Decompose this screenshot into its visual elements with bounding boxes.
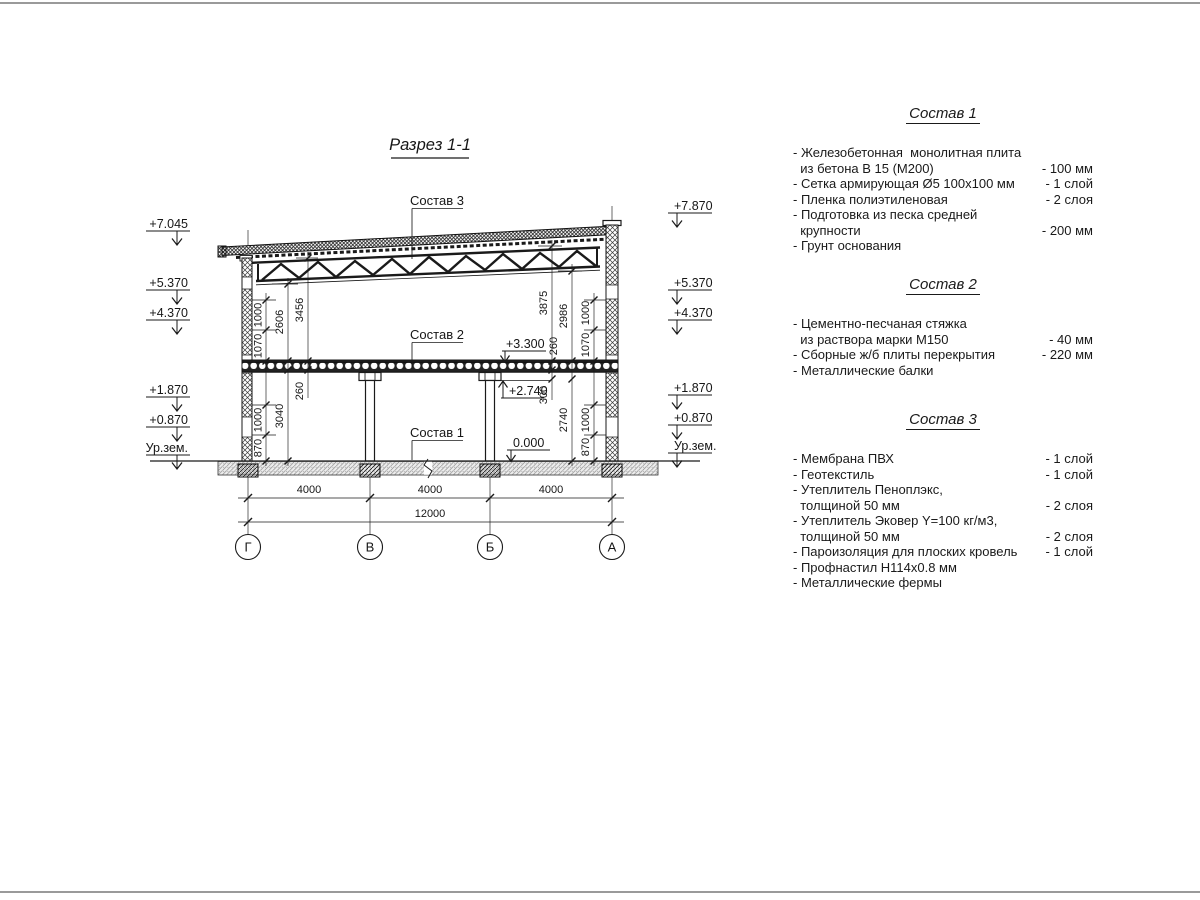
svg-text:Состав 3: Состав 3: [410, 193, 464, 208]
span-dim: 4000: [297, 484, 321, 496]
axis-label: В: [366, 540, 375, 555]
material-item: - Пленка полиэтиленовая- 2 слоя: [793, 192, 1093, 208]
elevation-mark-left-4: +0.870: [146, 413, 190, 441]
material-item: - Мембрана ПВХ- 1 слой: [793, 451, 1093, 467]
materials-section-1: Состав 1 - Железобетонная монолитная пли…: [793, 105, 1093, 254]
svg-text:0.000: 0.000: [513, 436, 544, 450]
steel-beam: [479, 373, 501, 381]
svg-text:Ур.зем.: Ур.зем.: [674, 439, 716, 453]
dim-text: 3040: [274, 404, 286, 428]
dim-text: 2986: [558, 304, 570, 328]
material-item: - Железобетонная монолитная плита из бет…: [793, 145, 1093, 176]
section-title: Состав 1: [906, 105, 980, 124]
floor-slab: [242, 360, 618, 381]
svg-text:+3.300: +3.300: [506, 337, 545, 351]
elevation-mark-left-2: +4.370: [146, 306, 190, 334]
material-item: - Металлические фермы: [793, 575, 1093, 591]
truss-bottom-chord: [256, 267, 600, 282]
svg-text:+5.370: +5.370: [674, 276, 713, 290]
hollow-core-slabs: [242, 363, 618, 373]
svg-text:+4.370: +4.370: [149, 306, 188, 320]
elevation-mark-floor2: +3.300: [501, 337, 547, 362]
drawing-sheet: { "colors": {"line": "#1a1a1a", "page_ed…: [0, 0, 1200, 900]
material-item: - Цементно-песчаная стяжка из раствора м…: [793, 316, 1093, 347]
svg-text:Состав 2: Состав 2: [410, 327, 464, 342]
dim-text: 260: [548, 337, 560, 355]
dim-text: 1000: [253, 303, 265, 327]
elevation-mark-right-4: +0.870: [668, 411, 713, 439]
right-wall: [606, 225, 618, 461]
axis-bubbles: Г В Б А: [236, 535, 625, 560]
material-item: - Подготовка из песка средней крупности-…: [793, 207, 1093, 238]
elevation-mark-beam-soffit: +2.740: [499, 381, 548, 398]
material-item: - Металлические балки: [793, 363, 1093, 379]
column-shaft: [366, 381, 375, 462]
svg-text:Состав 1: Состав 1: [410, 425, 464, 440]
elevation-mark-left-1: +5.370: [146, 276, 190, 304]
dim-text: 1000: [580, 408, 592, 432]
page-title: Разрез 1-1: [389, 136, 471, 154]
page-bottom-edge: [0, 891, 1200, 893]
materials-section-3: Состав 3 - Мембрана ПВХ- 1 слой - Геотек…: [793, 411, 1093, 591]
span-dim: 4000: [418, 484, 442, 496]
ground-slab: [150, 459, 700, 478]
material-item: - Сборные ж/б плиты перекрытия- 220 мм: [793, 347, 1093, 363]
dim-text: 3456: [294, 298, 306, 322]
elevation-mark-left-5: Ур.зем.: [146, 441, 190, 469]
column-B-axis: [359, 373, 381, 462]
svg-text:+7.870: +7.870: [674, 199, 713, 213]
svg-text:+2.740: +2.740: [509, 384, 548, 398]
dim-text: 3875: [538, 291, 550, 315]
svg-text:+1.870: +1.870: [674, 381, 713, 395]
elevation-mark-right-3: +1.870: [668, 381, 713, 409]
dim-text: 1070: [253, 334, 265, 358]
column-shaft: [486, 381, 495, 462]
svg-text:+5.370: +5.370: [149, 276, 188, 290]
dim-text: 1000: [253, 408, 265, 432]
dim-text: 2740: [558, 408, 570, 432]
svg-text:+4.370: +4.370: [674, 306, 713, 320]
svg-text:Ур.зем.: Ур.зем.: [146, 441, 188, 455]
span-dim: 4000: [539, 484, 563, 496]
axis-label: Б: [486, 540, 495, 555]
axis-label: А: [608, 540, 617, 555]
section-title: Состав 2: [906, 276, 980, 295]
drawing-title: Разрез 1-1: [389, 136, 471, 158]
dim-text: 1070: [580, 333, 592, 357]
elevation-mark-right-2: +4.370: [668, 306, 713, 334]
material-item: - Профнастил Н114х0.8 мм: [793, 560, 1093, 576]
section-drawing: 4000 4000 4000 12000 Г В Б А 1000: [0, 0, 760, 620]
dim-text: 870: [253, 439, 265, 457]
materials-section-2: Состав 2 - Цементно-песчаная стяжка из р…: [793, 276, 1093, 378]
material-item: - Сетка армирующая Ø5 100х100 мм- 1 слой: [793, 176, 1093, 192]
elevation-mark-right-1: +5.370: [668, 276, 713, 304]
svg-text:+1.870: +1.870: [149, 383, 188, 397]
material-item: - Геотекстиль- 1 слой: [793, 467, 1093, 483]
elevation-mark-right-0: +7.870: [668, 199, 713, 227]
material-item: - Утеплитель Эковер Y=100 кг/м3, толщино…: [793, 513, 1093, 544]
axis-label: Г: [244, 540, 251, 555]
elevation-mark-right-5: Ур.зем.: [668, 439, 716, 467]
dim-text: 870: [580, 438, 592, 456]
column-Б-axis: [479, 373, 501, 462]
svg-text:+0.870: +0.870: [674, 411, 713, 425]
dim-text: 260: [294, 382, 306, 400]
material-item: - Грунт основания: [793, 238, 1093, 254]
svg-text:+7.045: +7.045: [149, 217, 188, 231]
dim-text: 2606: [274, 310, 286, 334]
elevation-mark-left-0: +7.045: [146, 217, 190, 245]
section-title: Состав 3: [906, 411, 980, 430]
columns: [359, 373, 501, 462]
truss: [248, 248, 600, 285]
material-item: - Пароизоляция для плоских кровель- 1 сл…: [793, 544, 1093, 560]
eaves-cap: [218, 246, 226, 257]
dim-text: 1000: [580, 301, 592, 325]
callout-sostav-1: Состав 1: [410, 425, 464, 460]
elevation-mark-floor1: 0.000: [507, 436, 551, 462]
screed-layer: [242, 360, 618, 363]
material-item: - Утеплитель Пеноплэкс, толщиной 50 мм- …: [793, 482, 1093, 513]
total-span-dim: 12000: [415, 508, 446, 520]
callouts: Состав 3 Состав 2 Состав 1: [410, 193, 464, 460]
svg-text:+0.870: +0.870: [149, 413, 188, 427]
elevation-mark-left-3: +1.870: [146, 383, 190, 411]
steel-beam: [359, 373, 381, 381]
